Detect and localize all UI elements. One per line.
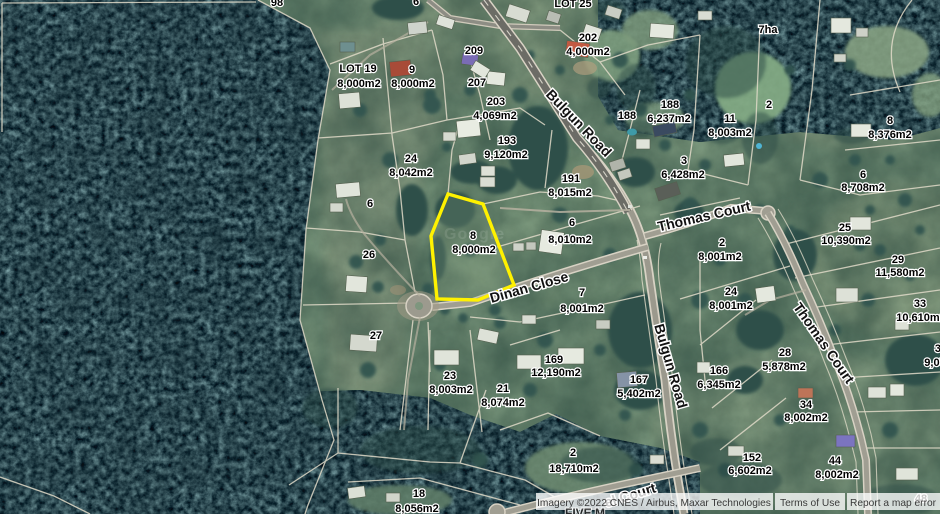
svg-text:8,015m2: 8,015m2: [548, 187, 591, 199]
svg-text:Terms of Use: Terms of Use: [780, 498, 840, 509]
svg-text:8,001m2: 8,001m2: [709, 300, 752, 312]
svg-text:152: 152: [743, 452, 761, 464]
svg-text:LOT 19: LOT 19: [339, 63, 376, 75]
svg-text:10,610m2: 10,610m2: [896, 312, 940, 324]
svg-text:98: 98: [271, 0, 283, 9]
svg-text:21: 21: [497, 383, 509, 395]
svg-text:8: 8: [470, 230, 476, 242]
svg-text:29: 29: [892, 254, 904, 266]
svg-text:188: 188: [618, 110, 636, 122]
svg-text:8,010m2: 8,010m2: [548, 234, 591, 246]
svg-text:6: 6: [569, 217, 575, 229]
svg-text:191: 191: [562, 173, 580, 185]
svg-text:193: 193: [498, 135, 516, 147]
svg-text:LOT 25: LOT 25: [554, 0, 591, 10]
svg-text:18,710m2: 18,710m2: [549, 463, 599, 475]
svg-text:8: 8: [887, 115, 893, 127]
svg-text:12,190m2: 12,190m2: [531, 367, 581, 379]
svg-text:2: 2: [719, 237, 725, 249]
svg-text:8,074m2: 8,074m2: [481, 397, 524, 409]
svg-text:9,120m2: 9,120m2: [484, 149, 527, 161]
svg-text:7: 7: [579, 287, 585, 299]
svg-text:8,001m2: 8,001m2: [560, 303, 603, 315]
svg-text:8,003m2: 8,003m2: [429, 384, 472, 396]
svg-text:8,000m2: 8,000m2: [452, 244, 495, 256]
svg-text:8,003m2: 8,003m2: [708, 127, 751, 139]
svg-text:6,237m2: 6,237m2: [647, 113, 690, 125]
svg-text:44: 44: [829, 455, 842, 467]
svg-text:8,002m2: 8,002m2: [815, 469, 858, 481]
svg-text:6,428m2: 6,428m2: [661, 169, 704, 181]
svg-text:167: 167: [630, 374, 648, 386]
svg-text:5,402m2: 5,402m2: [617, 388, 660, 400]
svg-text:23: 23: [444, 370, 456, 382]
svg-text:18: 18: [413, 488, 425, 500]
svg-text:8,001m2: 8,001m2: [698, 251, 741, 263]
svg-text:8,376m2: 8,376m2: [868, 129, 911, 141]
svg-text:24: 24: [725, 286, 738, 298]
svg-text:8,708m2: 8,708m2: [841, 182, 884, 194]
svg-text:188: 188: [661, 99, 679, 111]
svg-text:31: 31: [935, 343, 940, 355]
svg-text:10,390m2: 10,390m2: [821, 235, 871, 247]
svg-text:6: 6: [413, 0, 419, 8]
svg-text:34: 34: [800, 399, 813, 411]
svg-text:203: 203: [487, 96, 505, 108]
svg-text:28: 28: [779, 347, 791, 359]
svg-text:5,878m2: 5,878m2: [762, 361, 805, 373]
svg-text:4,000m2: 4,000m2: [566, 46, 609, 58]
svg-text:6,602m2: 6,602m2: [728, 465, 771, 477]
svg-text:Report a map error: Report a map error: [850, 498, 937, 509]
svg-text:8,002m2: 8,002m2: [784, 412, 827, 424]
svg-text:11,580m2: 11,580m2: [876, 267, 925, 279]
svg-text:25: 25: [839, 222, 851, 234]
svg-text:8,000m2: 8,000m2: [337, 78, 380, 90]
svg-text:8,000m2: 8,000m2: [391, 78, 434, 90]
svg-text:27: 27: [370, 330, 382, 342]
svg-text:2: 2: [766, 99, 772, 111]
svg-text:4,069m2: 4,069m2: [473, 110, 516, 122]
svg-text:9: 9: [409, 64, 415, 76]
svg-text:202: 202: [579, 32, 597, 44]
svg-text:3: 3: [681, 155, 687, 167]
svg-text:6,345m2: 6,345m2: [697, 379, 740, 391]
svg-text:6: 6: [367, 198, 373, 210]
svg-text:33: 33: [914, 298, 926, 310]
svg-text:11: 11: [724, 113, 736, 125]
svg-text:9,051m2: 9,051m2: [924, 357, 940, 369]
svg-text:169: 169: [545, 354, 563, 366]
svg-text:2: 2: [570, 447, 576, 459]
svg-text:166: 166: [710, 365, 728, 377]
svg-text:8,042m2: 8,042m2: [389, 167, 432, 179]
svg-text:24: 24: [405, 153, 418, 165]
svg-text:207: 207: [468, 77, 486, 89]
svg-text:6: 6: [860, 169, 866, 181]
svg-text:7ha: 7ha: [759, 24, 779, 36]
svg-text:209: 209: [465, 45, 483, 57]
svg-text:8,056m2: 8,056m2: [395, 503, 438, 514]
svg-text:FIVE M: FIVE M: [565, 506, 605, 514]
svg-text:26: 26: [363, 249, 375, 261]
